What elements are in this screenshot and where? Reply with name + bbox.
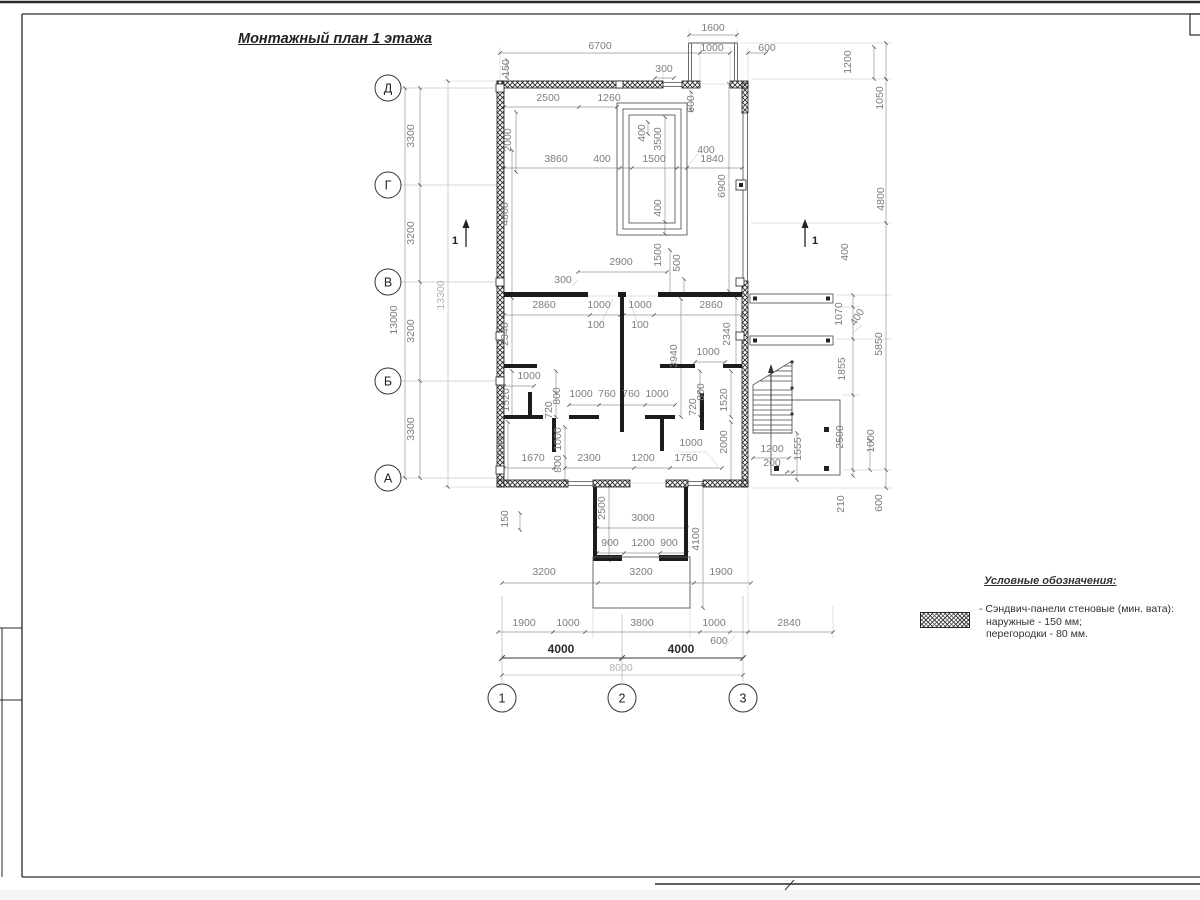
dim-label: 1855 [836, 357, 848, 381]
dim-label: 3200 [405, 221, 417, 245]
dim-label: 1070 [833, 302, 845, 326]
dim-label: 4000 [668, 642, 695, 656]
dim-label: 400 [652, 199, 664, 217]
dim-label: 2500 [536, 92, 560, 104]
dim-label: 6900 [716, 174, 728, 198]
drawing-sheet: 1 1 Д Г В Б А 1 2 3 16006 [0, 0, 1200, 900]
dim-label: 800 [552, 455, 564, 473]
interior-walls [504, 292, 742, 561]
dim-label: 800 [551, 387, 563, 405]
dim-label: 300 [554, 274, 572, 286]
dim-label: 1200 [631, 452, 655, 464]
axis-label: Д [384, 82, 393, 96]
dim-label: 200 [763, 457, 781, 469]
dim-label: 1000 [700, 42, 724, 54]
dim-label: 600 [710, 635, 728, 647]
dim-label: 1600 [701, 22, 725, 34]
terrace [771, 400, 840, 475]
dim-label: 2860 [699, 299, 723, 311]
dim-label: 1750 [674, 452, 698, 464]
sandwich-panel-hatch-symbol [920, 612, 970, 628]
dim-label: 1050 [874, 86, 886, 110]
dim-label: 1000 [679, 437, 703, 449]
dim-label: 1000 [556, 617, 580, 629]
dim-label: 1000 [628, 299, 652, 311]
section-marker-left: 1 [452, 219, 470, 247]
dim-label: 600 [873, 494, 885, 512]
dim-label: 1000 [645, 388, 669, 400]
dim-label: 600 [685, 95, 697, 113]
section-label: 1 [812, 235, 818, 247]
dim-label: 3200 [405, 319, 417, 343]
axis-label: А [384, 472, 393, 486]
entrance-porch [593, 557, 690, 608]
dim-label: 400 [593, 153, 611, 165]
dim-label: 1000 [517, 370, 541, 382]
dim-label: 2000 [718, 430, 730, 454]
axis-labels: Д Г В Б А 1 2 3 [384, 82, 747, 706]
stair [753, 360, 794, 433]
sheet-mark [785, 880, 794, 890]
dim-label: 760 [598, 388, 616, 400]
dim-label: 400 [697, 144, 715, 156]
dim-label: 1500 [652, 243, 664, 267]
dim-label: 2300 [577, 452, 601, 464]
floor-plan-canvas: 1 1 Д Г В Б А 1 2 3 16006 [0, 0, 1200, 900]
dim-label: 1520 [500, 388, 512, 412]
dim-label: 2840 [777, 617, 801, 629]
dim-label: 900 [660, 537, 678, 549]
dim-label: 2000 [502, 128, 514, 152]
dim-label: 1900 [512, 617, 536, 629]
dim-label: 500 [671, 254, 683, 272]
dim-label: 1000 [552, 427, 564, 451]
legend-item: наружные - 150 мм; [979, 616, 1174, 629]
dim-label: 13000 [388, 305, 400, 334]
dim-label: 400 [636, 124, 648, 142]
dim-label: 2000 [495, 432, 507, 456]
dim-label: 2340 [721, 322, 733, 346]
dim-label: 2500 [596, 496, 608, 520]
dim-label: 1260 [597, 92, 621, 104]
dim-label: 1900 [709, 566, 733, 578]
dim-label: 2860 [532, 299, 556, 311]
dim-label: 4800 [499, 202, 511, 226]
dim-label: 1670 [521, 452, 545, 464]
dim-label: 1200 [842, 50, 854, 74]
dim-label: 1000 [569, 388, 593, 400]
dim-label: 3200 [629, 566, 653, 578]
legend: Условные обозначения: - Сэндвич-панели с… [920, 575, 1180, 641]
dim-label: 3860 [544, 153, 568, 165]
dim-label: 3300 [405, 417, 417, 441]
dim-label: 760 [622, 388, 640, 400]
axis-label: Г [385, 179, 392, 193]
page-title: Монтажный план 1 этажа [238, 31, 432, 47]
dim-label: 8000 [609, 662, 633, 674]
section-label: 1 [452, 235, 458, 247]
dim-label: 1200 [760, 443, 784, 455]
dim-label: 900 [601, 537, 619, 549]
dim-label: 100 [631, 319, 649, 331]
dim-label: 600 [758, 42, 776, 54]
side-beams [750, 294, 833, 345]
dim-label: 2500 [834, 425, 846, 449]
dim-label: 1520 [718, 388, 730, 412]
axis-label: Б [384, 375, 392, 389]
dim-label: 1000 [865, 429, 877, 453]
dim-label: 400 [848, 307, 868, 328]
dim-label: 1200 [631, 537, 655, 549]
dim-label: 400 [839, 243, 851, 261]
dim-label: 13300 [435, 280, 447, 309]
dim-label: 150 [500, 59, 512, 77]
dim-label: 3500 [652, 127, 664, 151]
legend-item: - Сэндвич-панели стеновые (мин. вата): [979, 603, 1174, 616]
dim-label: 3200 [532, 566, 556, 578]
dim-label: 3000 [631, 512, 655, 524]
dim-label: 1555 [792, 437, 804, 461]
dim-label: 150 [499, 510, 511, 528]
dim-label: 5850 [873, 332, 885, 356]
axis-lines [401, 88, 743, 682]
dim-label: 2900 [609, 256, 633, 268]
dim-label: 300 [655, 63, 673, 75]
dim-label: 1000 [702, 617, 726, 629]
dim-label: 4000 [548, 642, 575, 656]
dim-label: 3940 [668, 344, 680, 368]
axis-label: В [384, 276, 392, 290]
dim-label: 1000 [696, 346, 720, 358]
axis-label: 1 [499, 692, 506, 706]
legend-title: Условные обозначения: [984, 575, 1180, 587]
sheet-frame [0, 2, 1200, 900]
dim-label: 4800 [875, 187, 887, 211]
dim-label: 4100 [690, 527, 702, 551]
dim-label: 3800 [630, 617, 654, 629]
dim-label: 2340 [499, 322, 511, 346]
dim-label: 210 [835, 495, 847, 513]
dim-label: 6700 [588, 40, 612, 52]
legend-item: перегородки - 80 мм. [979, 628, 1174, 641]
axis-label: 3 [740, 692, 747, 706]
axis-label: 2 [619, 692, 626, 706]
dim-label: 100 [587, 319, 605, 331]
dim-label: 3300 [405, 124, 417, 148]
dimension-labels: 1600670010006003001503300320032003300130… [388, 22, 887, 674]
dim-label: 800 [695, 383, 707, 401]
dim-label: 1500 [642, 153, 666, 165]
dim-label: 1000 [587, 299, 611, 311]
